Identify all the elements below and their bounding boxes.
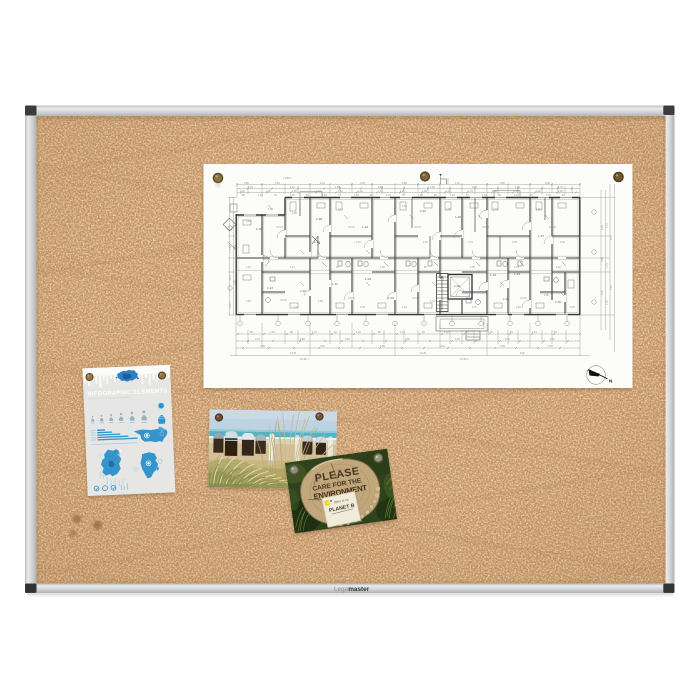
svg-text:1.02: 1.02 xyxy=(454,284,460,288)
svg-text:1.15: 1.15 xyxy=(312,331,317,334)
svg-text:2.64: 2.64 xyxy=(229,303,232,308)
svg-text:1.25: 1.25 xyxy=(240,190,245,193)
svg-text:1.11: 1.11 xyxy=(332,282,338,286)
svg-text:1.95: 1.95 xyxy=(548,345,553,348)
svg-text:1.66: 1.66 xyxy=(292,190,297,193)
svg-text:1.44: 1.44 xyxy=(378,190,383,193)
svg-text:1.75: 1.75 xyxy=(558,186,563,189)
svg-text:1.75: 1.75 xyxy=(606,263,609,268)
svg-text:8.92: 8.92 xyxy=(520,352,525,355)
svg-text:1.90: 1.90 xyxy=(260,345,265,348)
svg-text:3.62: 3.62 xyxy=(275,182,280,185)
svg-text:2.05: 2.05 xyxy=(500,345,505,348)
svg-text:2,05: 2,05 xyxy=(292,212,297,215)
svg-text:2,95: 2,95 xyxy=(246,300,251,303)
svg-text:2,85: 2,85 xyxy=(446,208,451,211)
svg-text:1.12: 1.12 xyxy=(400,331,405,334)
svg-text:2,52: 2,52 xyxy=(560,241,565,244)
svg-text:1.18: 1.18 xyxy=(444,331,449,334)
svg-text:3.10: 3.10 xyxy=(229,275,232,280)
svg-text:36.48 m: 36.48 m xyxy=(300,358,309,361)
svg-text:2.85: 2.85 xyxy=(229,245,232,250)
svg-text:2,62: 2,62 xyxy=(246,220,251,223)
svg-text:2.12: 2.12 xyxy=(446,190,451,193)
svg-text:1.15: 1.15 xyxy=(256,227,262,231)
svg-text:2.70: 2.70 xyxy=(505,338,510,341)
svg-text:2.30: 2.30 xyxy=(316,190,321,193)
svg-text:3.85: 3.85 xyxy=(402,182,407,185)
svg-text:2,05: 2,05 xyxy=(512,241,517,244)
svg-text:2.26: 2.26 xyxy=(400,190,405,193)
svg-text:2.18: 2.18 xyxy=(358,190,363,193)
svg-text:3.68: 3.68 xyxy=(500,182,505,185)
svg-text:10.25: 10.25 xyxy=(420,352,427,355)
svg-text:1,86: 1,86 xyxy=(318,300,323,303)
svg-text:1.95: 1.95 xyxy=(430,186,435,189)
svg-text:3.40: 3.40 xyxy=(345,338,350,341)
svg-text:2,28: 2,28 xyxy=(516,306,521,309)
svg-text:2.05: 2.05 xyxy=(266,190,271,193)
svg-text:1.06: 1.06 xyxy=(546,194,551,197)
svg-text:2,14: 2,14 xyxy=(294,306,299,309)
svg-text:1.92: 1.92 xyxy=(234,280,237,285)
svg-text:2.85: 2.85 xyxy=(244,182,249,185)
svg-text:1.24: 1.24 xyxy=(270,331,275,334)
svg-text:5.15: 5.15 xyxy=(610,235,613,240)
svg-text:2.96: 2.96 xyxy=(360,182,365,185)
svg-text:3.25: 3.25 xyxy=(455,338,460,341)
svg-text:1,12: 1,12 xyxy=(290,266,295,269)
svg-text:3.58: 3.58 xyxy=(601,257,604,262)
svg-text:1.70: 1.70 xyxy=(468,190,473,193)
svg-text:2,44: 2,44 xyxy=(356,241,361,244)
svg-text:7.345 m: 7.345 m xyxy=(283,177,292,180)
svg-text:1,05: 1,05 xyxy=(514,266,519,269)
svg-text:1.45: 1.45 xyxy=(248,186,253,189)
svg-text:1.21: 1.21 xyxy=(314,240,320,244)
svg-text:2.35: 2.35 xyxy=(472,186,477,189)
svg-text:1.16: 1.16 xyxy=(362,225,368,229)
svg-text:3.15: 3.15 xyxy=(255,338,260,341)
svg-text:1.12: 1.12 xyxy=(258,194,263,197)
svg-text:1.26: 1.26 xyxy=(455,215,461,219)
svg-text:1.33: 1.33 xyxy=(490,273,496,277)
svg-text:2.90: 2.90 xyxy=(601,290,604,295)
svg-text:1.03: 1.03 xyxy=(388,296,394,300)
svg-text:2,35: 2,35 xyxy=(493,208,498,211)
svg-text:2.35: 2.35 xyxy=(606,300,609,305)
svg-text:1,45: 1,45 xyxy=(246,266,251,269)
svg-text:2,12: 2,12 xyxy=(430,300,435,303)
svg-text:3.05: 3.05 xyxy=(550,338,555,341)
svg-text:1.62: 1.62 xyxy=(514,190,519,193)
svg-text:2.10: 2.10 xyxy=(515,186,520,189)
svg-text:4.25: 4.25 xyxy=(601,225,604,230)
svg-text:4.25: 4.25 xyxy=(455,182,460,185)
svg-text:1.48: 1.48 xyxy=(558,190,563,193)
svg-text:2.40: 2.40 xyxy=(440,345,445,348)
svg-text:12.48: 12.48 xyxy=(290,352,297,355)
svg-text:1,25: 1,25 xyxy=(380,266,385,269)
svg-text:1.20: 1.20 xyxy=(356,331,361,334)
svg-text:3,12: 3,12 xyxy=(338,208,343,211)
svg-text:1,95: 1,95 xyxy=(544,294,549,297)
svg-text:2,35: 2,35 xyxy=(360,306,365,309)
svg-text:1,84: 1,84 xyxy=(268,208,273,211)
svg-text:2.25: 2.25 xyxy=(320,345,325,348)
svg-text:1.02: 1.02 xyxy=(354,194,359,197)
svg-text:2.45: 2.45 xyxy=(378,186,383,189)
svg-text:1.12: 1.12 xyxy=(300,289,306,293)
svg-text:1.32: 1.32 xyxy=(555,300,561,304)
svg-text:2.95: 2.95 xyxy=(405,338,410,341)
svg-text:1.15: 1.15 xyxy=(386,194,391,197)
svg-text:1.05: 1.05 xyxy=(290,194,295,197)
svg-text:1,95: 1,95 xyxy=(402,205,407,208)
svg-text:4.42: 4.42 xyxy=(610,285,613,290)
svg-text:1.10: 1.10 xyxy=(482,194,487,197)
svg-text:1.25: 1.25 xyxy=(488,331,493,334)
svg-text:2,05: 2,05 xyxy=(570,306,575,309)
svg-text:1.16: 1.16 xyxy=(514,194,519,197)
svg-text:1.13: 1.13 xyxy=(267,286,273,290)
svg-text:1.85: 1.85 xyxy=(380,345,385,348)
svg-text:1,35: 1,35 xyxy=(470,266,475,269)
svg-text:2.22: 2.22 xyxy=(536,190,541,193)
svg-text:1.08: 1.08 xyxy=(418,194,423,197)
svg-text:1.58: 1.58 xyxy=(422,190,427,193)
svg-text:1.14: 1.14 xyxy=(532,331,537,334)
svg-text:1.24: 1.24 xyxy=(420,209,426,213)
svg-text:1.18: 1.18 xyxy=(322,194,327,197)
svg-text:1.34: 1.34 xyxy=(514,272,520,276)
svg-text:1,22: 1,22 xyxy=(556,266,561,269)
svg-text:1.52: 1.52 xyxy=(338,190,343,193)
svg-text:1.22: 1.22 xyxy=(450,194,455,197)
svg-text:2,20: 2,20 xyxy=(423,241,428,244)
svg-text:1.04: 1.04 xyxy=(365,277,371,281)
svg-text:1,88: 1,88 xyxy=(536,208,541,211)
svg-text:2.12: 2.12 xyxy=(606,223,609,228)
svg-text:1.45: 1.45 xyxy=(234,245,237,250)
svg-text:2.08: 2.08 xyxy=(492,190,497,193)
svg-text:1.88: 1.88 xyxy=(335,186,340,189)
svg-text:1,70: 1,70 xyxy=(468,241,473,244)
svg-text:Legamaster: Legamaster xyxy=(334,586,370,593)
svg-text:1.27: 1.27 xyxy=(538,234,544,238)
svg-text:1.18: 1.18 xyxy=(316,217,322,221)
svg-text:24.15 m: 24.15 m xyxy=(460,358,469,361)
svg-text:1,92: 1,92 xyxy=(402,306,407,309)
svg-text:2.12: 2.12 xyxy=(290,186,295,189)
svg-text:1.35: 1.35 xyxy=(503,297,509,301)
svg-text:1,75: 1,75 xyxy=(472,306,477,309)
svg-text:3.90: 3.90 xyxy=(545,182,550,185)
svg-text:2.80: 2.80 xyxy=(300,338,305,341)
svg-text:4.10: 4.10 xyxy=(320,182,325,185)
